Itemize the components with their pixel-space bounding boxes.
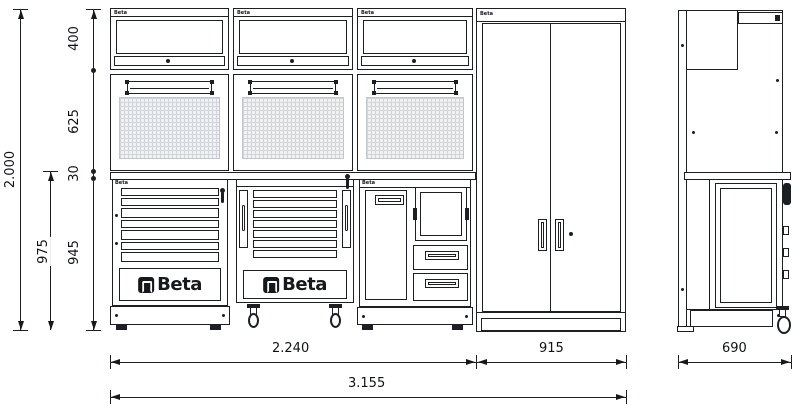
arrow-left-icon bbox=[111, 359, 120, 365]
arrow-up-icon bbox=[91, 10, 97, 19]
tool-rail bbox=[127, 81, 212, 94]
drawer bbox=[253, 200, 337, 208]
perforated-panel bbox=[242, 97, 344, 159]
handle-slot bbox=[242, 205, 245, 231]
brand-mini-label: Beta bbox=[480, 11, 493, 17]
tall-cabinet-plinth bbox=[481, 318, 621, 331]
drawer bbox=[253, 220, 337, 228]
drawer-pull-profile bbox=[783, 226, 789, 235]
rail-cap-icon bbox=[210, 80, 214, 84]
bottom-door-panel: Beta bbox=[119, 268, 221, 301]
caster-wheel bbox=[328, 304, 344, 330]
dim-node bbox=[91, 68, 96, 73]
dim-975-label: 975 bbox=[36, 237, 51, 266]
wall-cabinet-2-top-line bbox=[234, 16, 352, 17]
caster-wheel-circle bbox=[330, 313, 341, 328]
drawer bbox=[253, 210, 337, 218]
side-handle-profile bbox=[783, 183, 791, 205]
machine-compartment bbox=[415, 187, 467, 241]
dim-3155-label: 3.155 bbox=[346, 376, 387, 391]
rail-cap-icon bbox=[454, 80, 458, 84]
door-handle bbox=[375, 195, 404, 205]
wall-cabinet-2: Beta bbox=[233, 8, 353, 70]
machine-panel bbox=[420, 192, 462, 236]
rail-cap-icon bbox=[210, 91, 214, 95]
fixing-dot bbox=[776, 79, 779, 82]
arrow-down-icon bbox=[91, 321, 97, 330]
fixing-dot bbox=[465, 315, 468, 318]
beta-logo: Beta bbox=[263, 277, 327, 293]
dim-line-915 bbox=[476, 362, 626, 363]
arrow-right-icon bbox=[466, 359, 475, 365]
arrow-left-icon bbox=[679, 359, 688, 365]
dim-2240-label: 2.240 bbox=[270, 341, 311, 356]
perforated-panel bbox=[119, 97, 220, 159]
wall-cabinet-2-flap-door bbox=[239, 20, 347, 54]
drawer-handle bbox=[425, 251, 459, 260]
perforated-panel bbox=[366, 97, 464, 159]
fixing-dot bbox=[681, 288, 684, 291]
caster-wheel bbox=[246, 304, 262, 330]
drawer bbox=[121, 230, 219, 240]
tool-rail-line bbox=[377, 88, 453, 89]
drawer-pull-profile bbox=[783, 270, 789, 279]
wall-cabinet-1-flap-door bbox=[116, 20, 223, 54]
tool-rail bbox=[374, 81, 456, 94]
roller-cab-rim-line bbox=[237, 186, 353, 187]
tall-cabinet-top-line bbox=[477, 21, 625, 22]
dim-line-3155 bbox=[110, 397, 626, 398]
drawer bbox=[121, 198, 219, 206]
wall-cabinet-1: Beta bbox=[110, 8, 229, 70]
dim-total-height-label: 2.000 bbox=[3, 149, 18, 190]
arrow-left-icon bbox=[478, 359, 487, 365]
foot bbox=[362, 325, 373, 330]
tool-panel-1 bbox=[110, 74, 229, 171]
tool-panel-2 bbox=[233, 74, 353, 171]
fixing-dot bbox=[681, 44, 684, 47]
rail-cap-icon bbox=[334, 80, 338, 84]
clamp-icon bbox=[465, 208, 469, 220]
tall-cabinet: Beta bbox=[476, 8, 626, 332]
side-handle-rail-left bbox=[239, 190, 248, 248]
arrow-down-icon bbox=[18, 321, 24, 330]
tall-cabinet-door-left bbox=[482, 23, 551, 312]
tall-cabinet-door-right bbox=[550, 23, 621, 312]
wall-cabinet-3-top-line bbox=[358, 16, 472, 17]
rail-cap-icon bbox=[248, 80, 252, 84]
rail-cap-icon bbox=[372, 91, 376, 95]
beta-logo: Beta bbox=[138, 277, 202, 293]
dim-line-total-height bbox=[20, 10, 21, 330]
service-module: Beta bbox=[359, 179, 471, 307]
drawer bbox=[121, 242, 219, 250]
tall-cabinet-base-line bbox=[477, 312, 625, 313]
drawer bbox=[253, 190, 337, 198]
drawer-stack bbox=[253, 190, 337, 258]
wall-cabinet-3-flap-door bbox=[363, 20, 467, 54]
drawer bbox=[121, 188, 219, 196]
clamp-icon bbox=[413, 208, 417, 220]
dim-node bbox=[91, 169, 96, 174]
dim-915-label: 915 bbox=[537, 341, 566, 356]
bottom-door-panel: Beta bbox=[243, 270, 347, 299]
foot bbox=[116, 325, 127, 330]
dim-ext-tick bbox=[791, 355, 792, 369]
dim-node bbox=[91, 176, 96, 181]
arrow-left-icon bbox=[111, 394, 120, 400]
rail-cap-icon bbox=[372, 80, 376, 84]
brand-mini-label: Beta bbox=[362, 180, 375, 186]
caster-wheel-circle bbox=[777, 316, 791, 334]
handle-slot bbox=[345, 205, 348, 231]
drawer bbox=[121, 208, 219, 218]
drawer bbox=[121, 220, 219, 228]
key-lock-icon bbox=[221, 192, 224, 203]
fixing-dot bbox=[692, 131, 695, 134]
door-handle-left bbox=[538, 219, 547, 251]
drawer-stack bbox=[121, 188, 219, 262]
arrow-up-icon bbox=[48, 172, 54, 181]
dim-400-label: 400 bbox=[67, 24, 82, 53]
dim-625-label: 625 bbox=[67, 107, 82, 136]
dim-30-label: 30 bbox=[67, 163, 82, 184]
rail-cap-icon bbox=[334, 91, 338, 95]
side-wall-cabinet-profile bbox=[686, 10, 738, 70]
fixed-drawer-cabinet: Beta Beta bbox=[112, 179, 228, 306]
fixing-dot bbox=[115, 242, 118, 245]
side-worktop-profile bbox=[684, 172, 791, 180]
technical-drawing-canvas: Beta Beta Beta bbox=[0, 0, 800, 409]
beta-wrench-icon bbox=[263, 277, 279, 293]
arrow-right-icon bbox=[616, 394, 625, 400]
caster-wheel-circle bbox=[248, 313, 259, 328]
beta-logo-text: Beta bbox=[282, 277, 327, 293]
fixing-dot bbox=[222, 314, 225, 317]
wall-cabinet-3: Beta bbox=[357, 8, 473, 70]
lock-icon bbox=[569, 232, 573, 236]
caster-wheel-side bbox=[775, 306, 791, 332]
fixing-dot bbox=[362, 315, 365, 318]
fixing-dot bbox=[115, 214, 118, 217]
rail-cap-icon bbox=[454, 91, 458, 95]
beta-logo-text: Beta bbox=[157, 277, 202, 293]
tool-rail bbox=[250, 81, 336, 94]
lock-icon bbox=[290, 59, 294, 63]
rail-end-cap bbox=[775, 15, 780, 21]
fixing-dot bbox=[115, 314, 118, 317]
side-handle-rail-right bbox=[342, 190, 351, 248]
dim-line-2240 bbox=[110, 362, 476, 363]
tool-rail-line bbox=[253, 88, 333, 89]
tool-panel-3 bbox=[357, 74, 473, 171]
beta-wrench-icon bbox=[138, 277, 154, 293]
drawer bbox=[253, 250, 337, 258]
arrow-up-icon bbox=[18, 10, 24, 19]
wall-cabinet-1-top-line bbox=[111, 16, 228, 17]
lock-icon bbox=[166, 59, 170, 63]
brand-mini-label: Beta bbox=[115, 180, 128, 186]
tall-door bbox=[365, 190, 407, 300]
arrow-right-icon bbox=[616, 359, 625, 365]
drawer bbox=[253, 230, 337, 238]
drawer-handle bbox=[425, 279, 459, 288]
plinth-base-1 bbox=[110, 306, 230, 325]
key-lock-icon bbox=[346, 178, 349, 189]
drawer-large bbox=[413, 273, 468, 301]
arrow-right-icon bbox=[781, 359, 790, 365]
dim-tick bbox=[13, 330, 28, 331]
dim-ext-tick bbox=[626, 390, 627, 404]
drawer-large bbox=[413, 245, 468, 270]
foot bbox=[210, 325, 221, 330]
rail-cap-icon bbox=[248, 91, 252, 95]
side-plinth bbox=[690, 310, 773, 327]
dim-tick bbox=[86, 330, 101, 331]
side-door-panel bbox=[715, 183, 777, 308]
side-cabinet-line bbox=[709, 180, 710, 310]
rail-cap-icon bbox=[125, 80, 129, 84]
drawer bbox=[253, 240, 337, 248]
arrow-down-icon bbox=[48, 321, 54, 330]
plinth-base-3 bbox=[357, 307, 473, 325]
lock-icon bbox=[412, 59, 416, 63]
dim-line-690 bbox=[678, 362, 791, 363]
side-top-rail bbox=[738, 12, 783, 24]
fixing-dot bbox=[775, 131, 778, 134]
tool-rail-line bbox=[130, 88, 209, 89]
mobile-roller-cabinet: Beta bbox=[236, 179, 354, 303]
drawer bbox=[121, 252, 219, 262]
dim-945-label: 945 bbox=[67, 238, 82, 267]
foot bbox=[452, 325, 463, 330]
door-handle-right bbox=[555, 219, 564, 251]
dim-ext-tick bbox=[626, 355, 627, 369]
dim-690-label: 690 bbox=[720, 341, 749, 356]
drawer-pull-profile bbox=[783, 248, 789, 257]
rail-cap-icon bbox=[125, 91, 129, 95]
side-door-inner bbox=[720, 188, 772, 303]
